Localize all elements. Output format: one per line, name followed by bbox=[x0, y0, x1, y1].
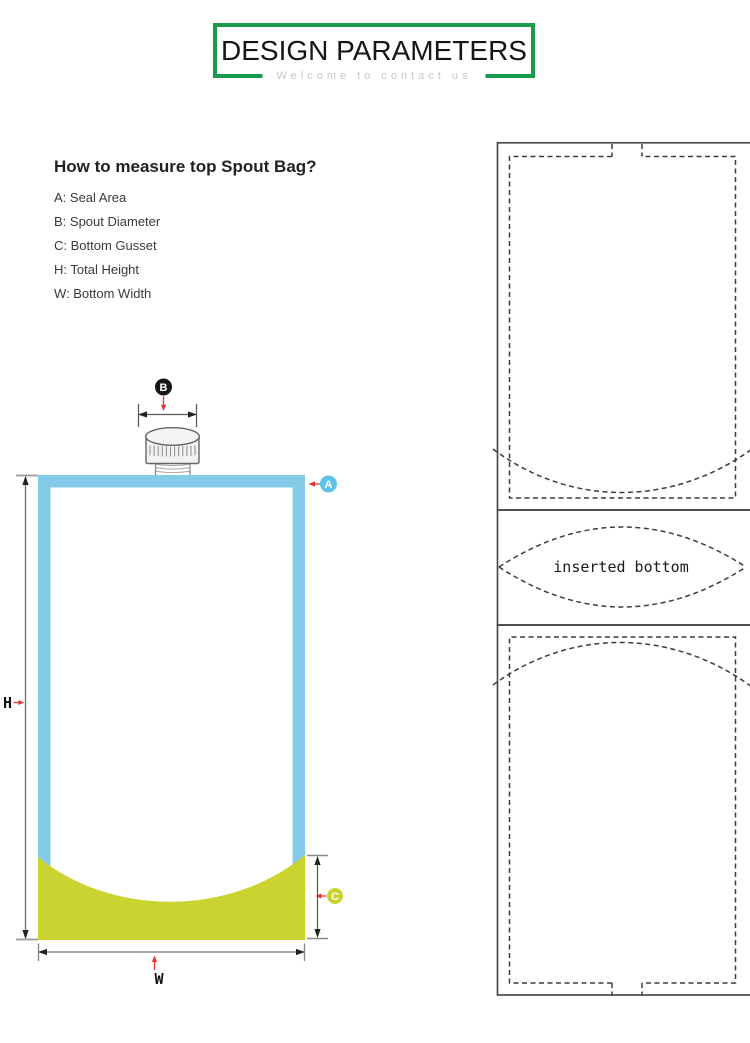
back-panel-dieline bbox=[493, 637, 750, 995]
legend-item-spout-diameter: B: Spout Diameter bbox=[54, 210, 317, 234]
badge-a-label: A bbox=[325, 479, 333, 491]
spout-cap bbox=[146, 428, 200, 464]
bag-body bbox=[38, 475, 305, 940]
inserted-bottom-label: inserted bottom bbox=[553, 558, 688, 576]
legend-item-total-height: H: Total Height bbox=[54, 258, 317, 282]
page-title: DESIGN PARAMETERS bbox=[217, 27, 531, 74]
spout-diameter-dimension bbox=[138, 404, 197, 427]
front-panel-dieline bbox=[493, 144, 750, 498]
badge-b-label: B bbox=[160, 382, 168, 394]
label-bottom-width: W bbox=[154, 970, 164, 988]
total-height-dimension: H bbox=[3, 476, 38, 940]
spout-diameter-badge: B bbox=[155, 379, 172, 412]
legend-heading: How to measure top Spout Bag? bbox=[54, 157, 317, 177]
bag-interior bbox=[51, 488, 293, 941]
bottom-width-dimension: W bbox=[38, 944, 305, 989]
header-box: DESIGN PARAMETERS Welcome to contact us bbox=[213, 23, 535, 78]
legend-item-bottom-width: W: Bottom Width bbox=[54, 282, 317, 306]
dieline-panel: inserted bottom bbox=[490, 138, 750, 1000]
legend-item-bottom-gusset: C: Bottom Gusset bbox=[54, 234, 317, 258]
seal-area-badge: A bbox=[309, 476, 338, 493]
bottom-gusset-dimension bbox=[307, 856, 328, 939]
badge-c-label: C bbox=[331, 891, 339, 903]
legend-item-seal-area: A: Seal Area bbox=[54, 186, 317, 210]
page: DESIGN PARAMETERS Welcome to contact us … bbox=[0, 0, 750, 1043]
bottom-gusset-badge: C bbox=[316, 888, 344, 904]
header-subtitle: Welcome to contact us bbox=[262, 68, 485, 84]
measurement-legend: How to measure top Spout Bag? A: Seal Ar… bbox=[54, 157, 317, 306]
label-total-height: H bbox=[3, 694, 12, 712]
spout-bag-diagram: B A H bbox=[0, 370, 400, 1010]
